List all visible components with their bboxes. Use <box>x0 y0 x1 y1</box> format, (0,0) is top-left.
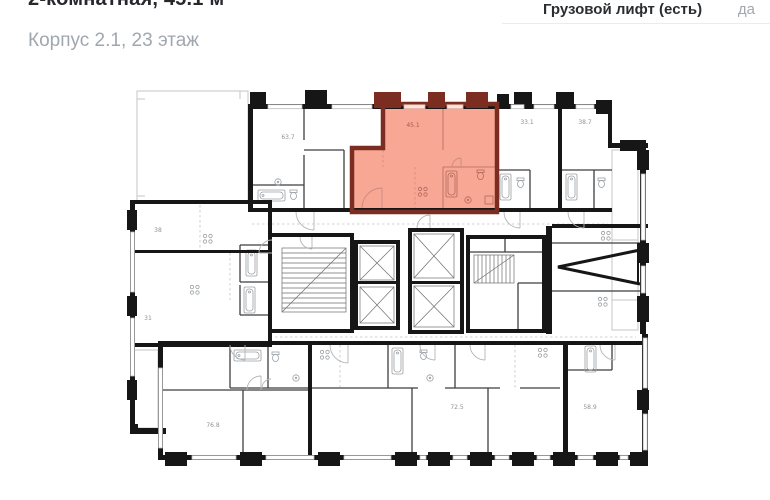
floor-plan: 63.7 45.1 33.1 38.7 38 31 76.8 72.5 58.9 <box>0 0 770 500</box>
unit-76-8[interactable] <box>158 345 308 457</box>
stairwell-left <box>282 248 346 312</box>
ramp-wedge <box>552 243 640 291</box>
label-63-7: 63.7 <box>281 134 295 141</box>
label-45-1: 45.1 <box>406 122 420 129</box>
label-33-1: 33.1 <box>520 119 534 126</box>
label-76-8: 76.8 <box>206 422 220 429</box>
stairwell-right <box>466 235 542 329</box>
label-38: 38 <box>154 227 162 234</box>
label-31: 31 <box>144 315 152 322</box>
label-72-5: 72.5 <box>450 404 464 411</box>
elevator-bank-left <box>360 246 394 323</box>
unit-72-5[interactable] <box>312 345 563 457</box>
label-38-7: 38.7 <box>578 119 592 126</box>
label-58-9: 58.9 <box>583 404 597 411</box>
elevator-bank-center <box>414 234 454 327</box>
unit-58-9[interactable] <box>567 345 648 457</box>
